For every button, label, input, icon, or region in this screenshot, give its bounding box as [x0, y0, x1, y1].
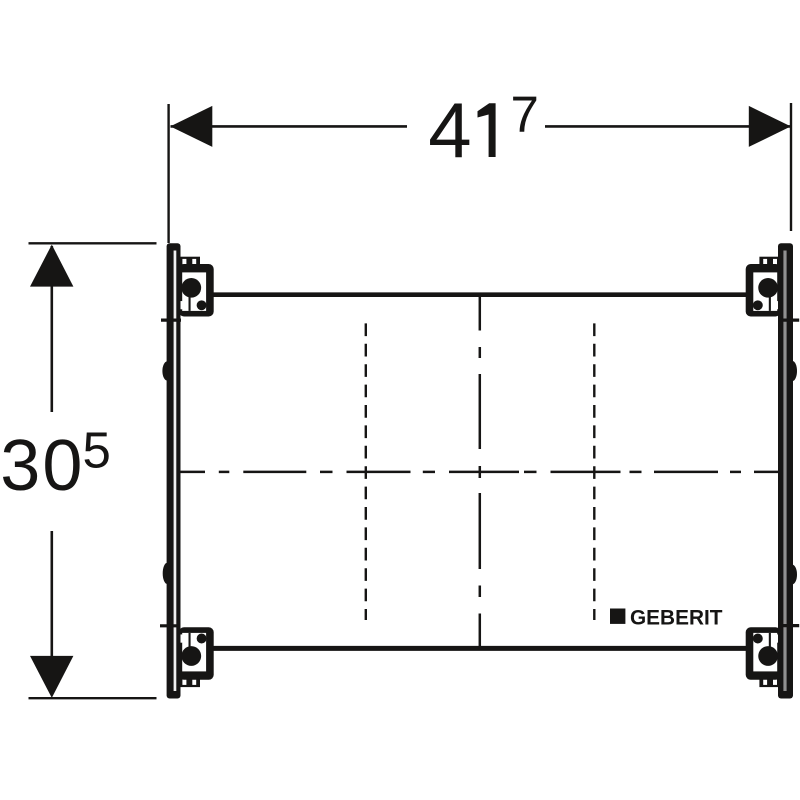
svg-text:4: 4 [428, 86, 471, 174]
svg-text:30: 30 [0, 426, 84, 506]
svg-text:5: 5 [83, 422, 111, 479]
svg-text:GEBERIT: GEBERIT [630, 607, 723, 630]
svg-text:7: 7 [511, 86, 539, 143]
